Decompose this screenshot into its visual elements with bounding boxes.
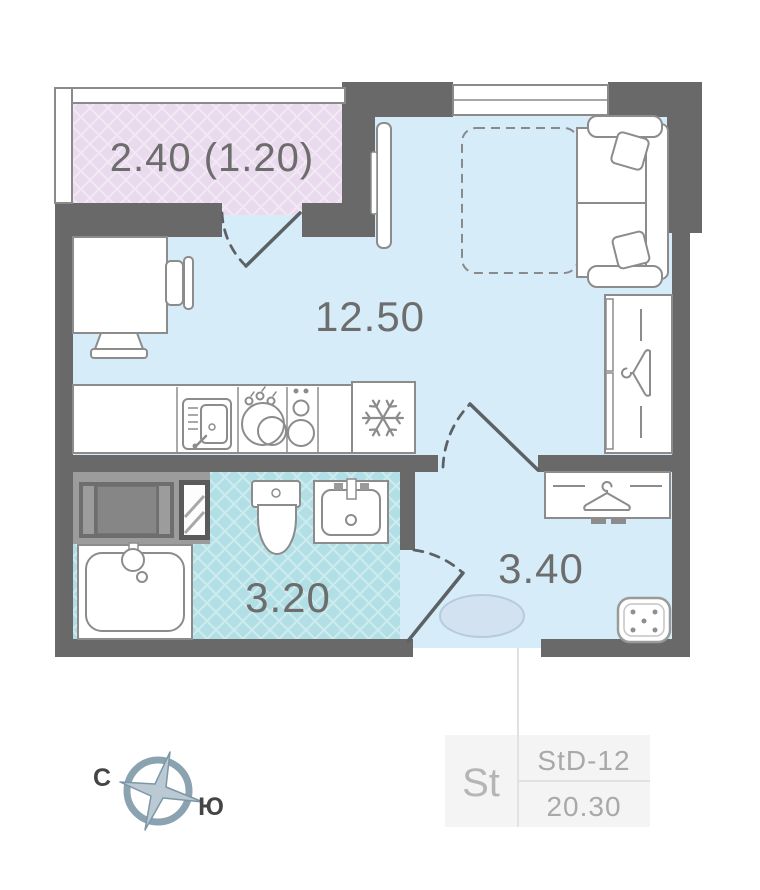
wardrobe-foot (611, 518, 626, 524)
fridge (352, 382, 415, 453)
desk-chair-back (184, 257, 193, 309)
wall-right-upper (667, 117, 702, 233)
compass: С Ю (93, 752, 224, 830)
balcony-glazing-left (55, 88, 72, 203)
wall-mid-left (73, 455, 438, 472)
wall-balcony-left (55, 203, 222, 237)
bathroom-area-label: 3.20 (245, 574, 331, 621)
pouf (440, 595, 524, 637)
kitchen-counter (73, 382, 415, 453)
wall-right (672, 233, 690, 657)
wardrobe (605, 295, 672, 453)
unit-total-area: 20.30 (546, 791, 621, 822)
mirror (179, 480, 210, 540)
unit-type-label: St (462, 761, 500, 805)
wardrobe-door-rail (606, 299, 613, 371)
entrance-threshold (413, 639, 541, 648)
sofa-armrest-bottom (588, 266, 662, 287)
bathroom-sink (314, 479, 388, 543)
hallway-area-label: 3.40 (498, 545, 584, 592)
compass-north-label: С (93, 764, 111, 792)
wardrobe-foot (591, 518, 606, 524)
sofa-pillow (612, 231, 651, 270)
living-area-label: 12.50 (315, 293, 425, 340)
wardrobe-door-rail (606, 373, 613, 449)
wall-left (55, 203, 73, 657)
main-window (453, 85, 608, 115)
wall-bottom-right (541, 639, 690, 657)
floor-plan-page: 2.40 (1.20) 12.50 3.20 3.40 St StD-12 20… (0, 0, 760, 890)
desk (73, 237, 167, 333)
utility-niche (73, 472, 210, 544)
wall-bathroom-hall (400, 472, 415, 550)
radiator-valve (371, 152, 377, 214)
wall-top-right-pillar (608, 82, 702, 117)
wall-balcony-right (302, 203, 345, 237)
washer-dryer (79, 482, 174, 538)
doormat (618, 598, 670, 642)
unit-card: St StD-12 20.30 (445, 648, 650, 827)
stool-top (95, 333, 143, 349)
balcony-doorway-floor (222, 215, 302, 237)
wall-mid-right (538, 455, 672, 472)
wall-bottom-left (55, 639, 413, 657)
compass-south-label: Ю (198, 793, 224, 821)
sofa (577, 116, 668, 287)
unit-layout-code: StD-12 (537, 745, 630, 776)
balcony-area-label: 2.40 (1.20) (110, 136, 314, 180)
shower (78, 543, 192, 639)
wall-top-pillar (342, 82, 453, 117)
balcony-glazing-top (55, 88, 345, 103)
wall-pillar-vertical (342, 117, 375, 237)
desk-chair-seat (166, 261, 183, 305)
stool-base (91, 349, 147, 358)
hall-wardrobe (545, 472, 670, 524)
radiator (377, 123, 391, 248)
floor-plan-svg: 2.40 (1.20) 12.50 3.20 3.40 St StD-12 20… (0, 0, 760, 890)
